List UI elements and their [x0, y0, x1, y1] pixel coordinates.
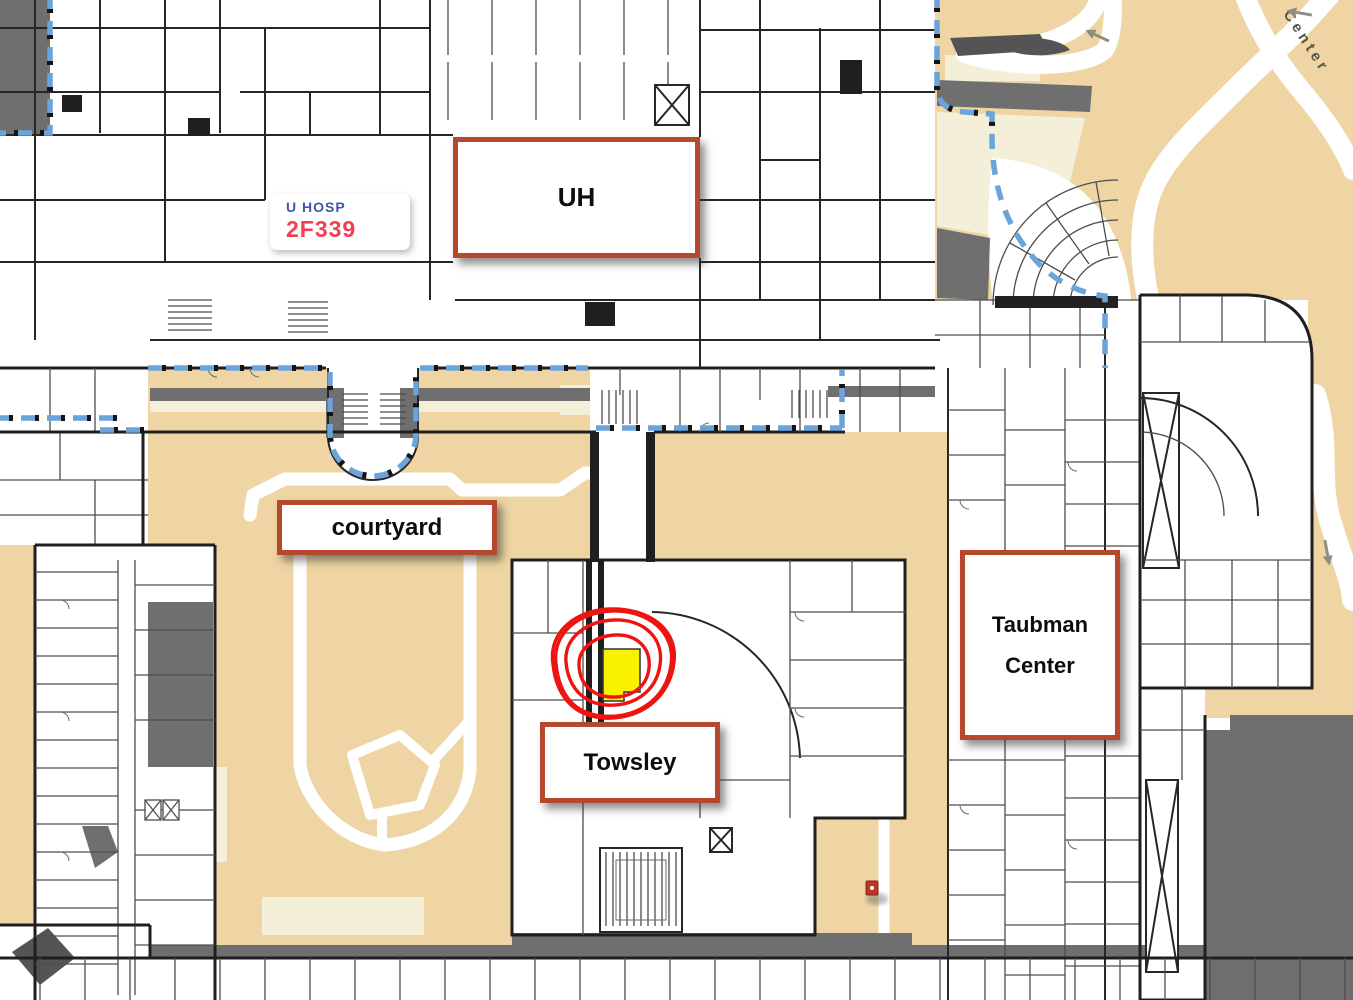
label-uh-text: UH — [558, 181, 596, 214]
callout-building-text: U HOSP — [286, 199, 402, 215]
label-taubman-line2: Center — [1005, 652, 1075, 680]
label-towsley-text: Towsley — [584, 748, 677, 778]
label-courtyard-text: courtyard — [332, 513, 443, 543]
label-box-uh: UH — [453, 137, 700, 258]
label-taubman-line1: Taubman — [992, 611, 1088, 639]
callout-room-number: 2F339 — [286, 216, 402, 243]
campus-floorplan-map: Center UH courtyard Towsley Taubman Cent… — [0, 0, 1353, 1000]
label-box-taubman-center: Taubman Center — [960, 550, 1120, 740]
room-number-callout[interactable]: U HOSP 2F339 — [270, 194, 410, 250]
label-box-towsley: Towsley — [540, 722, 720, 803]
label-box-courtyard: courtyard — [277, 500, 497, 555]
